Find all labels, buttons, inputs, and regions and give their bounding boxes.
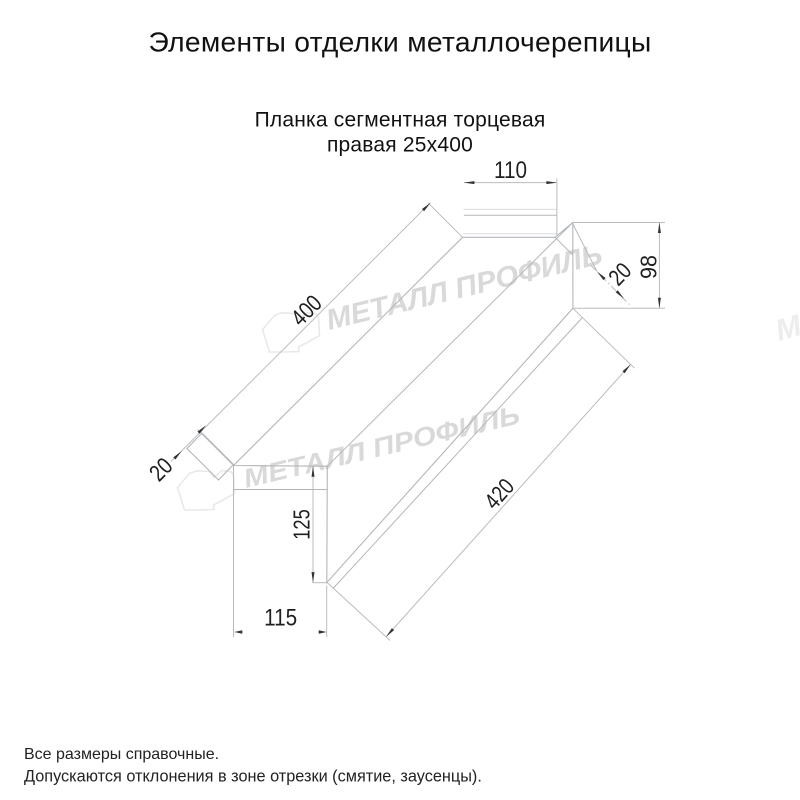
svg-text:115: 115 bbox=[264, 605, 297, 632]
svg-text:Планка сегментная торцевая: Планка сегментная торцевая bbox=[255, 109, 546, 132]
svg-text:Допускаются отклонения в зоне: Допускаются отклонения в зоне отрезки (с… bbox=[24, 768, 482, 786]
svg-text:Все размеры справочные.: Все размеры справочные. bbox=[24, 746, 219, 763]
svg-text:Элементы отделки металлочерепи: Элементы отделки металлочерепицы bbox=[148, 26, 651, 58]
svg-text:110: 110 bbox=[494, 157, 527, 184]
svg-text:125: 125 bbox=[289, 509, 315, 540]
svg-text:98: 98 bbox=[636, 255, 662, 279]
svg-text:правая 25х400: правая 25х400 bbox=[327, 134, 473, 157]
